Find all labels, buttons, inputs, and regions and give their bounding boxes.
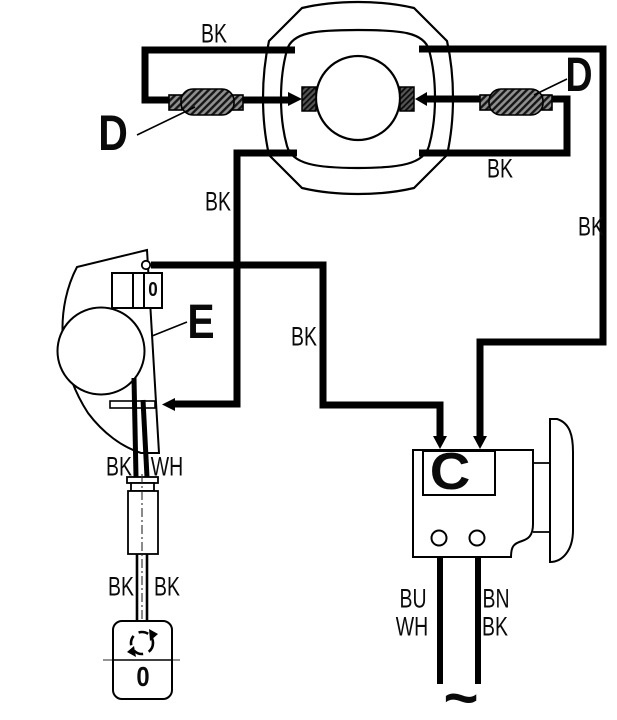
wire-label-coil-bk: BK <box>106 454 132 481</box>
arrow-into-left-tap <box>288 92 302 106</box>
regulator-terminal-left <box>432 531 447 546</box>
switch-position-marking: 0 <box>136 663 149 691</box>
wire-label-stator-left: BK <box>205 189 231 216</box>
leader-d-right <box>534 79 567 95</box>
wire-label-bk-bottom: BK <box>482 614 508 641</box>
wire-coil-feed <box>175 153 297 404</box>
wire-coil-to-regulator <box>151 265 440 438</box>
flywheel-inner-circle <box>316 56 400 140</box>
wire-label-bn: BN <box>482 586 509 613</box>
ac-source-symbol: ~ <box>443 668 478 720</box>
coil-terminal <box>142 261 150 269</box>
component-label-e: E <box>187 299 214 347</box>
coil-position-marking: 0 <box>148 280 157 300</box>
arrow-into-right-tap <box>415 92 427 106</box>
wire-label-bu: BU <box>399 586 426 613</box>
coil-wire-bk <box>134 378 136 477</box>
connector-body <box>181 89 234 115</box>
arrow-into-c-right <box>473 436 487 449</box>
wire-label-switch-left: BK <box>108 574 134 601</box>
arrow-into-coil <box>162 398 175 411</box>
stator-tap-left <box>302 87 316 111</box>
wire-label-coil-wh: WH <box>151 454 183 481</box>
leader-d-left <box>137 107 195 135</box>
regulator-boot <box>550 419 573 562</box>
component-label-c: C <box>430 446 471 498</box>
wire-label-center: BK <box>291 324 317 351</box>
wire-label-switch-right: BK <box>154 574 180 601</box>
wire-label-wh-bottom: WH <box>396 614 428 641</box>
connector-end-cap <box>169 95 182 110</box>
connector-housing <box>128 491 158 554</box>
stator-taps <box>302 87 414 111</box>
bullet-connector-right <box>480 89 552 115</box>
leader-e <box>152 322 187 336</box>
coil-bell <box>58 308 145 395</box>
bullet-connector-left <box>169 89 243 115</box>
component-label-d-left: D <box>98 108 128 158</box>
wire-label-right-vert: BK <box>578 214 604 241</box>
wiring-diagram: BK BK BK BK BK BK WH BK BK BU WH BN BK D… <box>0 0 617 720</box>
component-label-d-right: D <box>565 52 592 100</box>
connector-body <box>489 89 543 115</box>
stator-tap-right <box>400 87 414 111</box>
diagram-linework <box>0 0 617 720</box>
wire-label-top-left: BK <box>201 21 227 48</box>
wire-label-loop-right: BK <box>487 156 513 183</box>
regulator-terminal-right <box>470 531 485 546</box>
